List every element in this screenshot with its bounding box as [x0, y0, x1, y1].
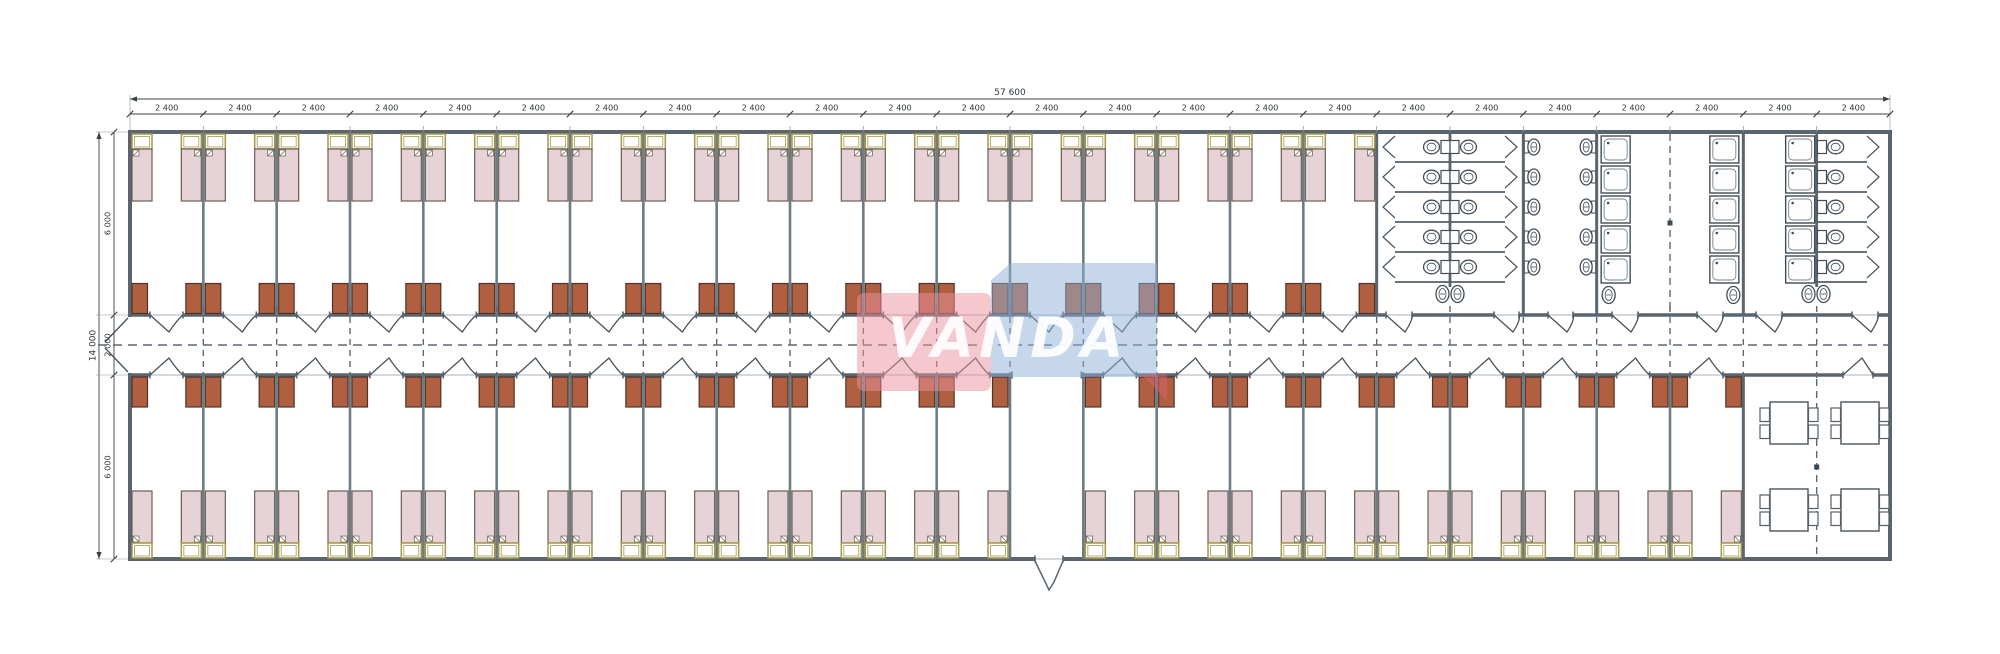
bed-pillow: [648, 137, 663, 148]
bed: [1428, 491, 1448, 543]
bed: [499, 491, 519, 543]
bed-pillow: [1088, 137, 1103, 148]
bed-pillow: [917, 137, 932, 148]
wardrobe: [645, 377, 661, 407]
bed-pillow: [1137, 546, 1152, 557]
bed-pillow: [551, 137, 566, 148]
bed: [1355, 149, 1375, 201]
stall-door-swing: [1867, 196, 1879, 218]
door-swing: [663, 358, 696, 375]
bed: [1525, 491, 1545, 543]
wardrobe: [406, 377, 422, 407]
module-dimension-label: 2 400: [522, 103, 545, 113]
bed-pillow: [697, 137, 712, 148]
bed: [548, 149, 568, 201]
wardrobe: [626, 377, 642, 407]
wardrobe: [205, 284, 221, 314]
bed-pillow: [1724, 546, 1739, 557]
stall-door-swing: [1383, 226, 1395, 248]
stall-door-swing: [1505, 136, 1517, 158]
bed-pillow: [844, 137, 859, 148]
toilet-tank-icon: [1450, 261, 1459, 274]
bed: [205, 491, 225, 543]
bed: [792, 149, 812, 201]
toilet-tank-icon: [1441, 171, 1450, 184]
wardrobe: [186, 284, 202, 314]
bed-pillow: [1651, 546, 1666, 557]
dining-table: [1770, 489, 1808, 531]
toilet-bowl-icon: [1424, 230, 1440, 244]
wardrobe: [1085, 377, 1101, 407]
wardrobe: [939, 284, 955, 314]
bed: [572, 149, 592, 201]
toilet-tank-icon: [1441, 141, 1450, 154]
bed-pillow: [941, 546, 956, 557]
dining-furniture: [1760, 402, 1889, 531]
toilet-bowl-icon: [1828, 140, 1844, 154]
bed: [621, 491, 641, 543]
bed: [1281, 491, 1301, 543]
wardrobe: [352, 284, 368, 314]
door-swing: [1177, 358, 1210, 375]
module-dimension-label: 2 400: [1402, 103, 1425, 113]
chair: [1809, 512, 1819, 526]
shower-drain: [1607, 172, 1610, 175]
door-swing: [1852, 315, 1878, 332]
bed-pillow: [184, 137, 199, 148]
wardrobe: [259, 377, 275, 407]
bed-pillow: [1088, 546, 1103, 557]
wardrobe: [1286, 284, 1302, 314]
wardrobe: [719, 377, 735, 407]
bed: [205, 149, 225, 201]
wardrobe: [1139, 284, 1155, 314]
dimension-arrow: [130, 96, 137, 101]
height-segment-label: 6 000: [103, 455, 113, 478]
wardrobe: [1672, 377, 1688, 407]
module-dimension-label: 2 400: [1182, 103, 1205, 113]
door-swing: [1690, 358, 1723, 375]
wardrobe: [499, 377, 514, 407]
bed: [915, 491, 935, 543]
bed-pillow: [281, 137, 296, 148]
bed-pillow: [1357, 137, 1372, 148]
door-swing: [883, 315, 916, 332]
wardrobe: [1159, 284, 1175, 314]
toilet-tank-icon: [1450, 201, 1459, 214]
toilet-tank-icon: [1450, 171, 1459, 184]
door-swing: [150, 358, 183, 375]
bed-pillow: [1431, 546, 1446, 557]
stall-door-swing: [1383, 166, 1395, 188]
door-swing: [1386, 315, 1412, 332]
bed: [548, 491, 568, 543]
bed-pillow: [477, 137, 492, 148]
bed-pillow: [501, 137, 516, 148]
wardrobe: [865, 284, 881, 314]
door-swing: [150, 315, 183, 332]
module-dimension-label: 2 400: [742, 103, 765, 113]
bed: [1232, 491, 1252, 543]
door-swing: [370, 315, 403, 332]
door-swing: [810, 358, 843, 375]
wardrobe: [259, 284, 275, 314]
bed: [181, 149, 201, 201]
bed: [1501, 491, 1521, 543]
bed: [719, 149, 739, 201]
bed-pillow: [208, 137, 223, 148]
bed-pillow: [1211, 137, 1226, 148]
wardrobe: [425, 284, 441, 314]
wardrobe: [406, 284, 422, 314]
module-dimension-label: 2 400: [962, 103, 985, 113]
bed: [181, 491, 201, 543]
bed-pillow: [208, 546, 223, 557]
door-swing: [297, 315, 330, 332]
wardrobe: [919, 377, 935, 407]
module-dimension-label: 2 400: [228, 103, 251, 113]
door-swing: [517, 315, 550, 332]
door-swing: [1697, 315, 1723, 332]
bed: [1452, 491, 1472, 543]
toilet-bowl-icon: [1461, 170, 1477, 184]
wardrobe: [1579, 377, 1595, 407]
chair: [1880, 495, 1890, 509]
module-dimension-label: 2 400: [1255, 103, 1278, 113]
bed: [645, 149, 665, 201]
bed-pillow: [697, 546, 712, 557]
dining-table: [1841, 402, 1879, 444]
bed-pillow: [771, 546, 786, 557]
chair: [1831, 512, 1841, 526]
shower-drain: [1716, 262, 1719, 265]
wardrobe: [1379, 377, 1395, 407]
shower-drain: [1607, 232, 1610, 235]
wardrobe: [626, 284, 642, 314]
bed-pillow: [575, 546, 590, 557]
wardrobe: [479, 377, 495, 407]
chair: [1831, 495, 1841, 509]
stall-door-swing: [1383, 136, 1395, 158]
wardrobe: [1506, 377, 1522, 407]
bed: [1159, 491, 1179, 543]
shower-drain: [1716, 232, 1719, 235]
wardrobe: [132, 284, 148, 314]
bed: [792, 491, 812, 543]
wardrobe: [479, 284, 495, 314]
wardrobe: [1232, 284, 1248, 314]
door-swing: [297, 358, 330, 375]
bed: [1648, 491, 1668, 543]
bed: [645, 491, 665, 543]
bed-pillow: [1577, 546, 1592, 557]
bed-pillow: [1161, 137, 1176, 148]
bed: [1355, 491, 1375, 543]
bed-pillow: [795, 546, 810, 557]
stall-door-swing: [1505, 226, 1517, 248]
chair: [1831, 425, 1841, 439]
module-dimension-label: 2 400: [302, 103, 325, 113]
bed-pillow: [257, 546, 272, 557]
bed: [1599, 491, 1619, 543]
bed: [841, 149, 861, 201]
door-swing: [810, 315, 843, 332]
bed-pillow: [1528, 546, 1543, 557]
bed-pillow: [648, 546, 663, 557]
bed: [572, 491, 592, 543]
bed: [939, 149, 959, 201]
shower-drain: [1716, 202, 1719, 205]
door-swing: [737, 358, 770, 375]
wardrobe: [1213, 377, 1229, 407]
shower-drain: [1607, 202, 1610, 205]
door-swing: [590, 358, 623, 375]
wardrobe: [1599, 377, 1615, 407]
toilet-tank-icon: [1817, 141, 1826, 154]
bed-pillow: [941, 137, 956, 148]
module-dimension-label: 2 400: [1108, 103, 1131, 113]
bed: [865, 491, 885, 543]
bed-pillow: [721, 546, 736, 557]
toilet-tank-icon: [1817, 261, 1826, 274]
stall-door-swing: [1867, 226, 1879, 248]
wardrobe: [1286, 377, 1302, 407]
wardrobe: [1066, 284, 1082, 314]
bed: [255, 491, 275, 543]
bed: [768, 491, 788, 543]
door-swing: [1177, 315, 1210, 332]
bed-pillow: [1235, 137, 1250, 148]
wardrobe: [919, 284, 935, 314]
bed-pillow: [501, 546, 516, 557]
shower-drain: [1791, 172, 1794, 175]
door-swing: [1612, 315, 1638, 332]
bed: [352, 149, 372, 201]
bed: [401, 491, 421, 543]
wardrobe: [1213, 284, 1229, 314]
module-dimension-label: 2 400: [815, 103, 838, 113]
bed: [621, 149, 641, 201]
toilet-tank-icon: [1441, 261, 1450, 274]
bed-pillow: [135, 546, 150, 557]
module-dimension-label: 2 400: [375, 103, 398, 113]
bed-pillow: [721, 137, 736, 148]
bed: [1208, 491, 1228, 543]
toilet-bowl-icon: [1461, 140, 1477, 154]
toilet-tank-icon: [1817, 201, 1826, 214]
bed: [475, 149, 495, 201]
stall-door-swing: [1505, 196, 1517, 218]
door-swing: [1103, 358, 1136, 375]
door-swing: [883, 358, 916, 375]
wardrobe: [993, 284, 1009, 314]
wardrobe: [1452, 377, 1468, 407]
bed: [695, 491, 715, 543]
door-swing: [443, 358, 476, 375]
bed-pillow: [1308, 546, 1323, 557]
door-swing: [517, 358, 550, 375]
dining-table: [1770, 402, 1808, 444]
wardrobe: [1305, 377, 1321, 407]
toilet-bowl-icon: [1828, 170, 1844, 184]
bed: [1208, 149, 1228, 201]
bed-pillow: [1284, 546, 1299, 557]
wardrobe: [792, 377, 808, 407]
wardrobe: [1359, 377, 1375, 407]
bed: [279, 491, 299, 543]
bed-pillow: [428, 137, 443, 148]
bed: [1012, 149, 1032, 201]
wardrobe: [846, 377, 862, 407]
wardrobe: [846, 284, 862, 314]
bed-pillow: [1675, 546, 1690, 557]
toilet-bowl-icon: [1461, 230, 1477, 244]
wardrobe: [132, 377, 148, 407]
door-swing: [1548, 315, 1573, 332]
dimension-arrow: [96, 132, 101, 139]
wardrobe: [333, 284, 349, 314]
wardrobe: [1085, 284, 1101, 314]
toilet-tank-icon: [1450, 231, 1459, 244]
bed-pillow: [331, 137, 346, 148]
door-swing: [737, 315, 770, 332]
bed: [1575, 491, 1595, 543]
toilet-bowl-icon: [1828, 200, 1844, 214]
entrance-double-door: [1035, 561, 1063, 590]
bed: [865, 149, 885, 201]
wardrobe: [699, 377, 715, 407]
bed: [841, 491, 861, 543]
wardrobe: [279, 377, 295, 407]
module-dimension-label: 2 400: [1328, 103, 1351, 113]
shower-drain: [1716, 172, 1719, 175]
wardrobe: [205, 377, 221, 407]
bed-pillow: [1308, 137, 1323, 148]
bed: [988, 491, 1008, 543]
bed: [425, 149, 445, 201]
wardrobe: [1653, 377, 1669, 407]
bed: [1061, 149, 1081, 201]
bed-pillow: [991, 137, 1006, 148]
toilet-tank-icon: [1817, 171, 1826, 184]
door-swing: [223, 358, 256, 375]
door-swing: [957, 358, 990, 375]
toilet-bowl-icon: [1461, 200, 1477, 214]
bed-pillow: [844, 546, 859, 557]
wardrobe: [572, 284, 588, 314]
toilet-tank-icon: [1441, 231, 1450, 244]
toilet-tank-icon: [1817, 231, 1826, 244]
bed: [1721, 491, 1741, 543]
toilet-tank-icon: [1441, 201, 1450, 214]
bed: [939, 491, 959, 543]
wardrobe: [186, 377, 202, 407]
shower-drain: [1607, 142, 1610, 145]
bed-pillow: [1504, 546, 1519, 557]
wardrobe: [425, 377, 441, 407]
bed-pillow: [917, 546, 932, 557]
wardrobe: [993, 377, 1009, 407]
module-dimension-label: 2 400: [1695, 103, 1718, 113]
bed-pillow: [1381, 546, 1396, 557]
stall-door-swing: [1505, 256, 1517, 278]
door-swing: [1843, 358, 1873, 375]
bed: [1085, 149, 1105, 201]
module-dimension-label: 2 400: [448, 103, 471, 113]
bed-pillow: [1064, 137, 1079, 148]
toilet-bowl-icon: [1424, 200, 1440, 214]
wardrobe: [1359, 284, 1375, 314]
stall-door-swing: [1867, 256, 1879, 278]
wardrobe: [1726, 377, 1742, 407]
module-dimension-label: 2 400: [668, 103, 691, 113]
door-swing: [957, 315, 990, 332]
module-dimension-label: 2 400: [1768, 103, 1791, 113]
shower-drain: [1791, 232, 1794, 235]
bed-pillow: [1357, 546, 1372, 557]
wardrobe: [645, 284, 661, 314]
bed: [1232, 149, 1252, 201]
bed: [1085, 491, 1105, 543]
bed: [499, 149, 519, 201]
door-swing: [1323, 358, 1356, 375]
bed: [1379, 491, 1399, 543]
chair: [1880, 425, 1890, 439]
stall-door-swing: [1383, 256, 1395, 278]
door-swing: [1494, 315, 1519, 332]
chair: [1760, 408, 1770, 422]
wardrobe: [279, 284, 295, 314]
grid-marker: [1668, 221, 1673, 226]
module-dimension-label: 2 400: [155, 103, 178, 113]
dimension-arrow: [96, 552, 101, 559]
bed: [1305, 149, 1325, 201]
bed: [132, 491, 152, 543]
bed-pillow: [1455, 546, 1470, 557]
bed-pillow: [355, 546, 370, 557]
bed: [279, 149, 299, 201]
wardrobe: [865, 377, 881, 407]
chair: [1809, 425, 1819, 439]
door-swing: [590, 315, 623, 332]
wardrobe: [333, 377, 349, 407]
bed-pillow: [428, 546, 443, 557]
module-dimension-label: 2 400: [1548, 103, 1571, 113]
bed: [328, 491, 348, 543]
bed: [719, 491, 739, 543]
module-dimension-label: 2 400: [888, 103, 911, 113]
toilet-bowl-icon: [1828, 230, 1844, 244]
chair: [1760, 495, 1770, 509]
chair: [1760, 512, 1770, 526]
module-dimension-label: 2 400: [1622, 103, 1645, 113]
bed-pillow: [771, 137, 786, 148]
bed-pillow: [624, 137, 639, 148]
wardrobe: [719, 284, 735, 314]
door-swing: [1543, 358, 1576, 375]
wardrobe: [773, 284, 789, 314]
toilet-bowl-icon: [1424, 260, 1440, 274]
bed-pillow: [184, 546, 199, 557]
bed: [915, 149, 935, 201]
bed-pillow: [1601, 546, 1616, 557]
stall-door-swing: [1383, 196, 1395, 218]
wardrobe: [1232, 377, 1248, 407]
toilet-bowl-icon: [1424, 140, 1440, 154]
door-swing: [370, 358, 403, 375]
bed: [255, 149, 275, 201]
bed: [1672, 491, 1692, 543]
